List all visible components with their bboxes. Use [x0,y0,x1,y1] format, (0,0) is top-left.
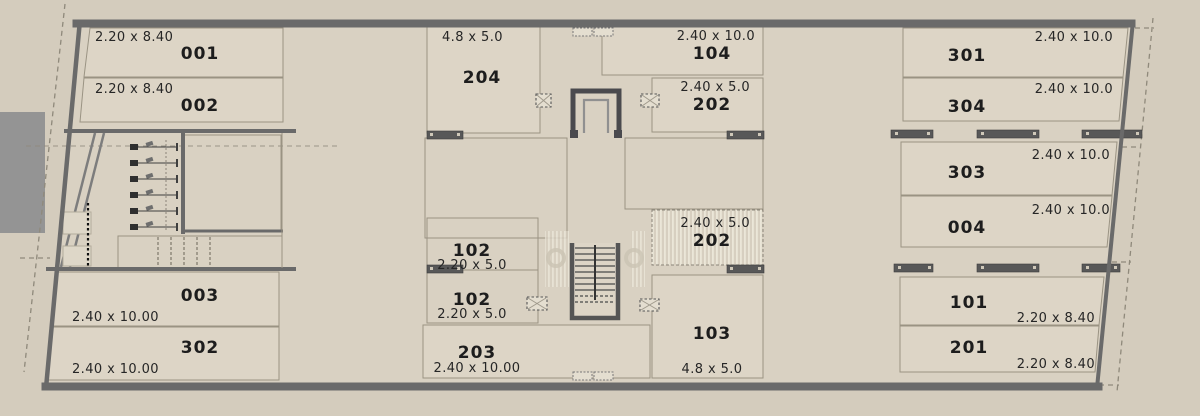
room-004-dims: 2.40 x 10.0 [1032,203,1110,218]
room-103-number: 103 [693,324,732,344]
room-203-dims: 2.40 x 10.00 [434,361,521,376]
room-003-dims: 2.40 x 10.00 [72,310,159,325]
floor-plan-svg: 2.20 x 8.40 001 2.20 x 8.40 002 003 2.40… [0,0,1200,416]
room-101-number: 101 [950,293,989,313]
room-203-number: 203 [458,343,497,363]
room-202b-dims: 2.40 x 5.0 [680,216,750,231]
room-001-dims: 2.20 x 8.40 [95,30,173,45]
room-202b-number: 202 [693,231,732,251]
room-102b-dims: 2.20 x 5.0 [437,307,507,322]
room-201-number: 201 [950,338,989,358]
room-301-number: 301 [948,46,987,66]
room-302-number: 302 [181,338,220,358]
room-302-dims: 2.40 x 10.00 [72,362,159,377]
room-204-number: 204 [463,68,502,88]
room-002-dims: 2.20 x 8.40 [95,82,173,97]
room-103-dims: 4.8 x 5.0 [682,362,743,377]
room-201-dims: 2.20 x 8.40 [1017,357,1095,372]
room-301-dims: 2.40 x 10.0 [1035,30,1113,45]
room-001-number: 001 [181,44,220,64]
neighbor-building-block [0,112,45,233]
staircase-symbol [572,243,618,318]
room-304-number: 304 [948,97,987,117]
room-202a-dims: 2.40 x 5.0 [680,80,750,95]
elevator-symbol [570,91,622,138]
room-303-dims: 2.40 x 10.0 [1032,148,1110,163]
room-102a-dims: 2.20 x 5.0 [437,258,507,273]
room-101-dims: 2.20 x 8.40 [1017,311,1095,326]
room-104-number: 104 [693,44,732,64]
floor-plan-canvas: 2.20 x 8.40 001 2.20 x 8.40 002 003 2.40… [0,0,1200,416]
room-104-dims: 2.40 x 10.0 [677,29,755,44]
room-304-dims: 2.40 x 10.0 [1035,82,1113,97]
room-303-number: 303 [948,163,987,183]
room-004-number: 004 [948,218,987,238]
room-204-dims: 4.8 x 5.0 [442,30,503,45]
room-002-number: 002 [181,96,220,116]
room-202a-number: 202 [693,95,732,115]
room-003-number: 003 [181,286,220,306]
